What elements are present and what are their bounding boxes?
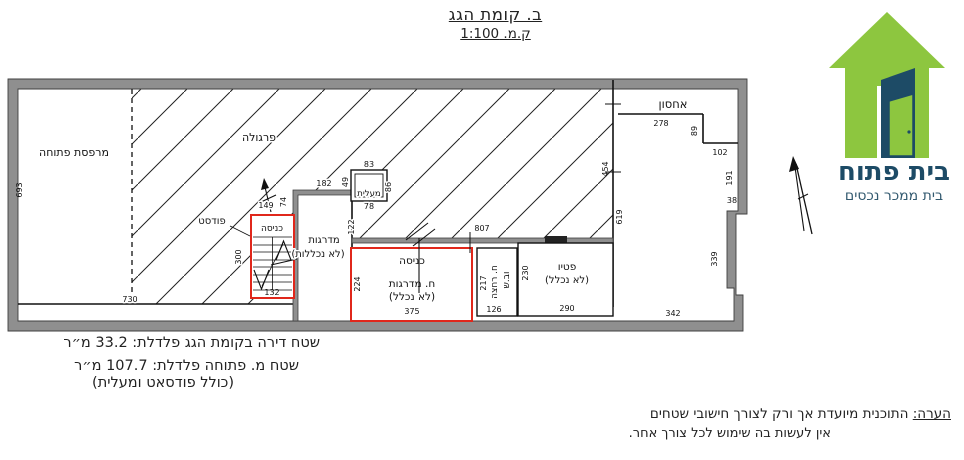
dim-38: 38 (727, 196, 737, 205)
floor-plan-page: ב. קומת הגג ק.מ. 1:100 (0, 0, 964, 460)
area-summary: שטח דירה בקומת הגג פלדלת: 33.2 מ״ר שטח מ… (63, 335, 320, 391)
disclaimer-label: הערה: (913, 406, 951, 422)
dim-191: 191 (725, 170, 734, 185)
dim-807: 807 (474, 224, 489, 233)
dim-86: 86 (384, 182, 393, 192)
label-elevator: מעלית (357, 189, 380, 199)
dim-122: 122 (347, 219, 356, 234)
label-patio-note: (לא נכלל) (545, 275, 589, 286)
label-not-included: (לא נכלל) (389, 291, 435, 303)
disclaimer-line2: אין לעשות בה שימוש לכל צורך אחר. (629, 426, 831, 441)
area-line-incl: (כולל פודסאט ומעלית) (63, 375, 234, 391)
dim-224: 224 (353, 276, 362, 291)
logo-door-leaf (889, 94, 913, 156)
dim-300: 300 (234, 249, 243, 264)
dim-730: 730 (122, 295, 137, 304)
dim-132: 132 (264, 288, 279, 297)
label-patio: פטיו (558, 261, 577, 273)
disclaimer-line1: הערה: התוכנית מיועדת אך ורק לצורך חישובי… (629, 406, 951, 422)
disclaimer-text1: התוכנית מיועדת אך ורק לצורך חישובי שטחים (650, 406, 909, 422)
dim-149: 149 (258, 201, 273, 210)
dim-182: 182 (316, 179, 331, 188)
dim-49: 49 (341, 177, 350, 187)
logo: בית פתוח בית ממכר נכסים (828, 158, 960, 204)
dim-454: 454 (601, 161, 610, 176)
dim-78: 78 (364, 202, 374, 211)
area-line-open: שטח מ. פתוחה פלדלת: 107.7 מ״ר (63, 358, 299, 374)
dim-74: 74 (279, 197, 288, 207)
dim-89: 89 (690, 126, 699, 136)
dim-126: 126 (486, 305, 501, 314)
floor-plan-drawing: מרפסת פתוחה פרגולה פודסט כניסה מדרגות (ל… (0, 0, 964, 460)
dim-693: 693 (15, 182, 24, 197)
logo-house-icon (829, 12, 945, 158)
patio-door-segment (545, 236, 567, 243)
dim-339: 339 (710, 251, 719, 266)
dim-375: 375 (404, 307, 419, 316)
disclaimer-note: הערה: התוכנית מיועדת אך ורק לצורך חישובי… (629, 406, 951, 441)
dim-278: 278 (653, 119, 668, 128)
dim-290: 290 (559, 304, 574, 313)
label-storage: אחסון (659, 97, 688, 111)
logo-tagline: בית ממכר נכסים (828, 188, 960, 204)
label-bathroom: ח. רחצה (490, 265, 500, 299)
label-entrance: כניסה (399, 255, 425, 267)
label-toilet: וב.ש (502, 272, 512, 289)
bottom-row-wall (352, 238, 613, 243)
north-arrow-icon (795, 164, 812, 234)
dim-217: 217 (479, 275, 488, 290)
label-stairwell: ח. מדרגות (389, 278, 435, 290)
label-stairs-note2: (לא נכללות) (291, 249, 344, 260)
label-podest: פודסט (198, 216, 225, 227)
label-stairs-note1: מדרגות (308, 235, 339, 246)
dim-230: 230 (521, 265, 530, 280)
dim-619: 619 (615, 209, 624, 224)
label-stairs-entry: כניסה (261, 224, 283, 234)
area-line-roof: שטח דירה בקומת הגג פלדלת: 33.2 מ״ר (63, 335, 320, 351)
dim-102: 102 (712, 148, 727, 157)
label-pergola: פרגולה (242, 131, 276, 144)
dim-342: 342 (665, 309, 680, 318)
label-open-balcony: מרפסת פתוחה (39, 146, 109, 159)
dim-83: 83 (364, 160, 374, 169)
logo-name: בית פתוח (828, 158, 960, 187)
